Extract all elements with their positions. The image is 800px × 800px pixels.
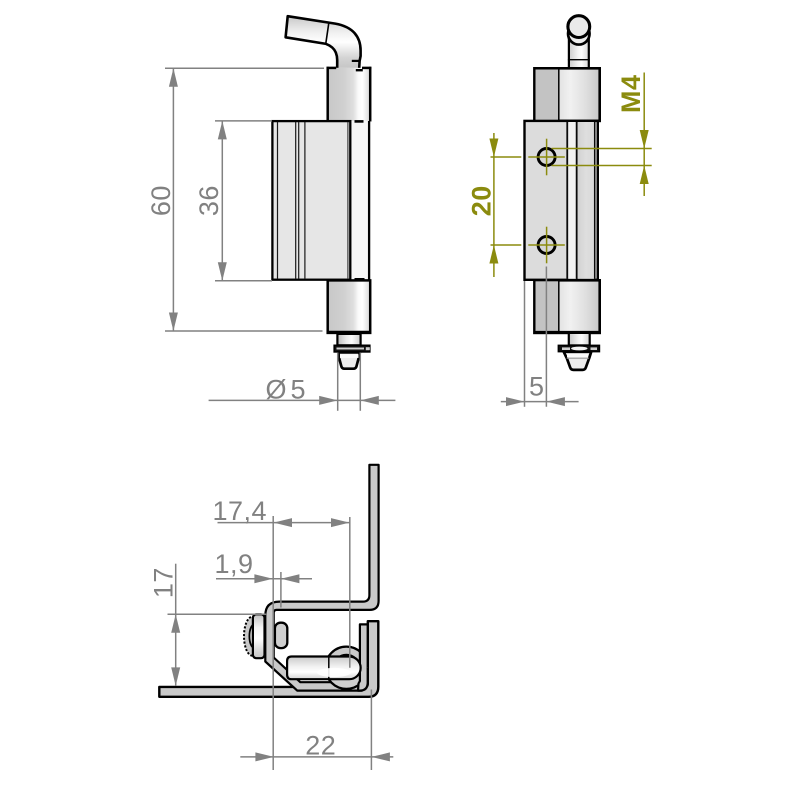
svg-text:22: 22 — [305, 731, 336, 761]
svg-text:17,4: 17,4 — [213, 496, 268, 526]
svg-text:20: 20 — [466, 185, 496, 216]
svg-text:17: 17 — [149, 567, 179, 598]
svg-text:36: 36 — [194, 185, 224, 216]
svg-text:5: 5 — [529, 372, 545, 402]
svg-text:Ø5: Ø5 — [266, 375, 310, 405]
svg-text:1,9: 1,9 — [215, 549, 254, 579]
svg-text:60: 60 — [146, 185, 176, 216]
svg-text:M4: M4 — [616, 74, 646, 113]
